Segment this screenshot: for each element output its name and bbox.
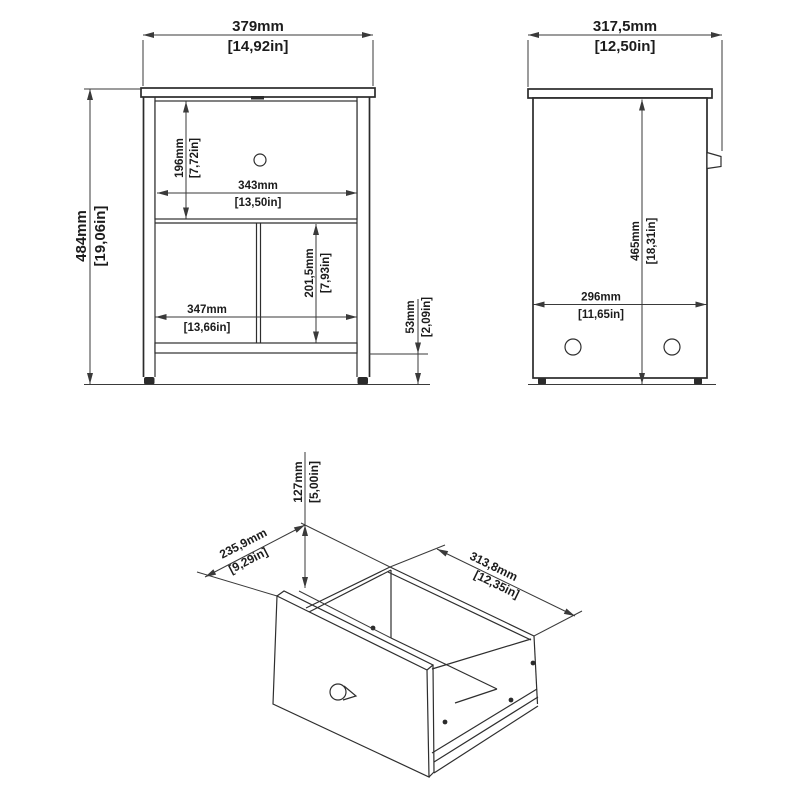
dim-plinth-height: 53mm [2,09in] [369,297,433,384]
drawer-right-wall-bottom [434,706,538,773]
side-knob [707,153,721,169]
drawer-front-w-in: [13,50in] [235,197,282,209]
open-w-mm: 347mm [187,304,227,316]
front-bottom-shelf [155,343,357,353]
side-height-mm: 465mm [630,221,642,261]
side-base-depth-in: [11,65in] [578,309,624,321]
drawer-left-wall-top-outer [306,567,390,608]
side-height-in: [18,31in] [646,218,658,265]
side-base-depth-mm: 296mm [581,292,621,304]
drawer-isometric-view: 127mm [5,00in] 235,9mm [9,29in] 313,8mm … [197,452,582,777]
front-width-mm: 379mm [232,18,284,35]
technical-drawing-canvas: 379mm [14,92in] 484mm [19,06in] 196mm [7… [0,0,800,800]
drawer-height-mm: 127mm [291,461,305,502]
drawer-height-in: [5,00in] [307,461,321,503]
side-front-foot [538,378,546,385]
front-height-in: [19,06in] [92,206,109,267]
drawer-screw-3 [509,698,514,703]
dim-front-width: 379mm [14,92in] [143,18,373,86]
side-depth-in: [12,50in] [595,38,656,55]
drawer-front-h-mm: 196mm [174,138,186,178]
drawer-bottom-front-edge [455,689,497,703]
front-top-panel [141,88,375,97]
front-view: 379mm [14,92in] 484mm [19,06in] 196mm [7… [73,18,433,385]
dim-open-height: 201,5mm [7,93in] [304,224,332,343]
dim-drawer-depth: 235,9mm [9,29in] [197,525,305,596]
side-depth-mm: 317,5mm [593,18,657,35]
drawer-screw-2 [531,661,536,666]
front-left-foot [144,377,155,385]
drawer-screw-4 [443,720,448,725]
front-cam-dash [251,96,264,100]
front-right-foot [358,377,369,385]
open-h-mm: 201,5mm [304,248,316,297]
side-view: 317,5mm [12,50in] 465mm [18,31in] 296mm … [528,18,722,385]
dim-front-height: 484mm [19,06in] [73,89,141,384]
drawer-knob [330,684,346,700]
plinth-in: [2,09in] [421,297,433,337]
nightstand-drawing: 379mm [14,92in] 484mm [19,06in] 196mm [7… [0,0,800,800]
drawer-front-panel [273,596,429,777]
dim-drawer-width: 313,8mm [12,35in] [390,545,582,636]
drawer-left-wall-top-inner [309,570,391,612]
side-body [533,98,707,378]
drawer-front-panel-right-edge [429,665,434,777]
front-width-in: [14,92in] [228,38,289,55]
side-top-panel [528,89,712,98]
drawer-back-right-corner [534,636,538,704]
drawer-rail-bottom [434,697,538,762]
plinth-mm: 53mm [405,300,417,333]
drawer-front-h-in: [7,72in] [189,138,201,178]
side-back-foot [694,378,702,385]
front-height-mm: 484mm [73,210,90,262]
drawer-rail-top [432,689,537,753]
open-h-in: [7,93in] [320,253,332,293]
open-w-in: [13,66in] [184,322,231,334]
drawer-front-w-mm: 343mm [238,180,278,192]
